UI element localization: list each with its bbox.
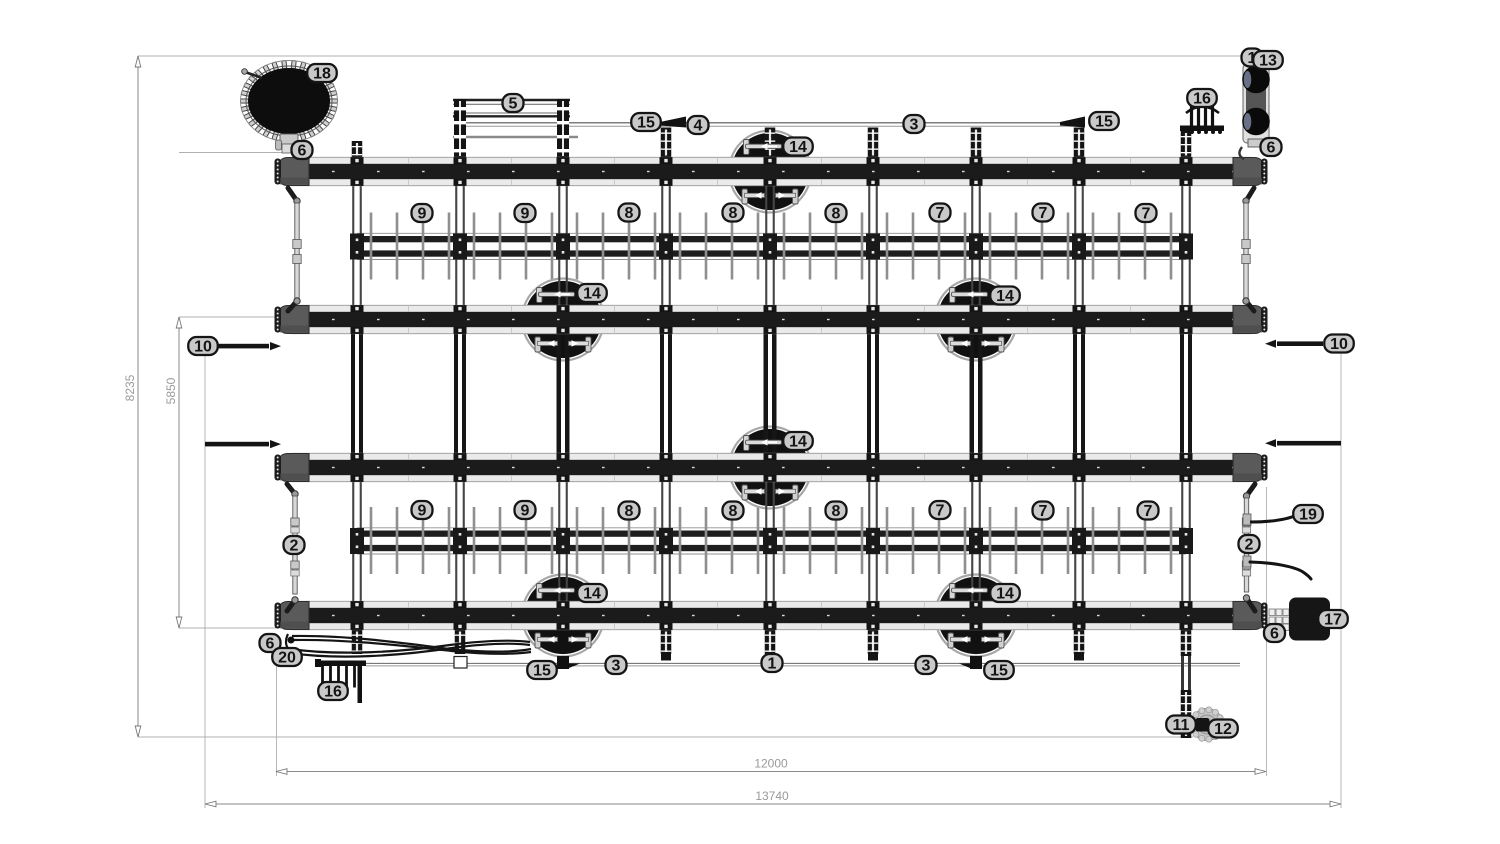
- svg-text:7: 7: [936, 502, 945, 519]
- svg-text:20: 20: [278, 649, 296, 666]
- svg-text:8: 8: [729, 503, 738, 520]
- svg-text:11: 11: [1173, 717, 1190, 734]
- svg-text:5850: 5850: [164, 377, 178, 404]
- svg-text:6: 6: [266, 635, 275, 652]
- svg-text:7: 7: [1142, 205, 1151, 222]
- svg-text:19: 19: [1299, 506, 1317, 523]
- svg-text:8: 8: [625, 205, 634, 222]
- svg-text:7: 7: [936, 205, 945, 222]
- svg-text:2: 2: [1245, 536, 1254, 553]
- svg-text:17: 17: [1324, 611, 1342, 628]
- svg-text:9: 9: [521, 502, 530, 519]
- svg-text:9: 9: [418, 502, 427, 519]
- svg-text:3: 3: [910, 116, 919, 133]
- svg-text:8: 8: [832, 503, 841, 520]
- svg-text:13: 13: [1259, 52, 1277, 69]
- svg-text:8: 8: [625, 503, 634, 520]
- svg-text:7: 7: [1039, 205, 1048, 222]
- svg-text:7: 7: [1144, 503, 1153, 520]
- svg-text:1: 1: [768, 655, 777, 672]
- svg-text:14: 14: [996, 288, 1014, 305]
- svg-text:14: 14: [789, 139, 807, 156]
- svg-text:4: 4: [694, 117, 703, 134]
- svg-text:15: 15: [1095, 113, 1113, 130]
- svg-text:8235: 8235: [123, 374, 137, 401]
- svg-text:3: 3: [922, 657, 931, 674]
- svg-text:8: 8: [832, 205, 841, 222]
- svg-text:16: 16: [1193, 90, 1211, 107]
- svg-text:15: 15: [990, 662, 1008, 679]
- svg-text:2: 2: [290, 537, 299, 554]
- svg-text:14: 14: [789, 433, 807, 450]
- svg-text:9: 9: [521, 205, 530, 222]
- svg-text:10: 10: [194, 338, 212, 355]
- svg-text:13740: 13740: [755, 789, 789, 803]
- svg-text:12: 12: [1214, 721, 1232, 738]
- svg-text:14: 14: [583, 585, 601, 602]
- svg-text:18: 18: [313, 65, 331, 82]
- svg-text:8: 8: [729, 205, 738, 222]
- svg-text:3: 3: [612, 657, 621, 674]
- svg-text:15: 15: [637, 114, 655, 131]
- svg-text:14: 14: [996, 585, 1014, 602]
- svg-text:5: 5: [509, 95, 518, 112]
- svg-text:15: 15: [533, 662, 551, 679]
- svg-text:10: 10: [1330, 336, 1348, 353]
- svg-text:6: 6: [298, 142, 307, 159]
- svg-text:9: 9: [418, 205, 427, 222]
- svg-text:6: 6: [1270, 625, 1279, 642]
- svg-text:12000: 12000: [754, 757, 788, 771]
- svg-text:7: 7: [1039, 503, 1048, 520]
- svg-text:14: 14: [583, 285, 601, 302]
- svg-text:6: 6: [1267, 139, 1276, 156]
- svg-text:16: 16: [324, 683, 342, 700]
